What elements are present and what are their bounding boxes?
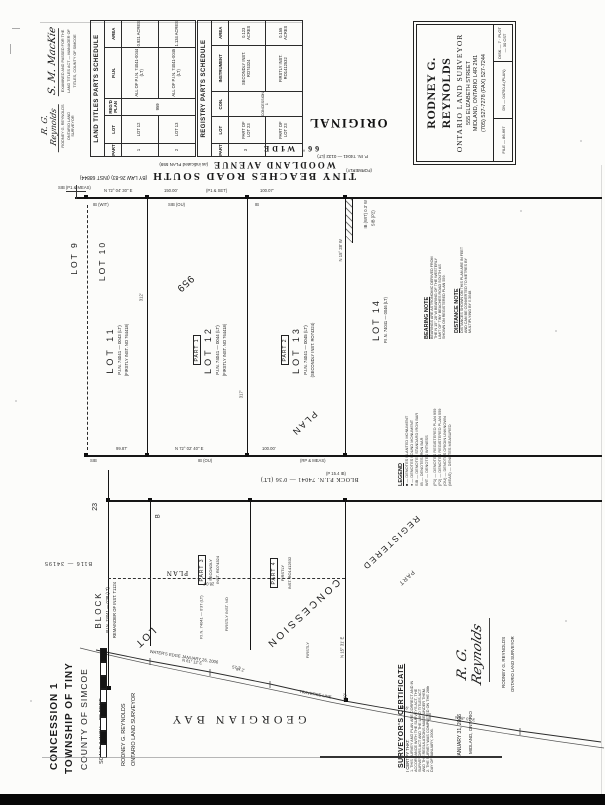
formerly-label: (FORMERLY) [338, 166, 380, 174]
tiny-beaches-road-text: TINY BEACHES ROAD SOUTH [151, 170, 356, 182]
parcel-lot13: PART 2 LOT 13 P.I.N. 74041 — 0045 (LT) (… [276, 288, 320, 412]
survey-annotation: IB (WIT) 0.3' W [364, 200, 369, 228]
firm-title: ONTARIO LAND SURVEYOR [455, 34, 464, 153]
col-header-area: AREA [105, 21, 121, 48]
cell-con-merged: CONCESSION 1 [228, 92, 302, 117]
survey-monument [84, 453, 88, 457]
block-south-limit-line [107, 500, 602, 502]
block-band-text: BLOCK P.I.N. 74041 — 0'36 (LT) [260, 476, 358, 483]
georgian-bay-label: GEORGIAN BAY [175, 706, 300, 732]
certificate-sig-title-text: ONTARIO LAND SURVEYOR [510, 636, 515, 692]
woodland-avenue-note: (as indicated PLAN 559) [159, 162, 208, 167]
table-row: 1 LOT 12 959 ALL OF P.I.N. 74041-0044 (L… [121, 21, 158, 157]
part4-inst2: INST. RO1412532 [287, 557, 292, 589]
lot10-text: LOT 10 [97, 241, 107, 281]
lower-firstly: FIRSTLY [306, 642, 310, 658]
parcel-lot11: LOT 11 P.I.N. 74041 — 0043 (LT) (FIRSTLY… [100, 290, 134, 410]
lot9-text: LOT 9 [69, 241, 79, 274]
scale-bar [100, 648, 107, 758]
cell-area: 1.134 ACRES [158, 21, 195, 48]
registry-schedule: REGISTRY PARTS SCHEDULE PART LOT CON. IN… [197, 20, 303, 157]
signature-rule [489, 618, 490, 682]
col-header-part: PART [212, 144, 228, 157]
surveyor-caption: RODNEY G. REYNOLDS [61, 104, 65, 147]
plan-dashed-label: PLAN [160, 567, 194, 577]
lot14-pin: P.I.N. 74041 — 0046 (LT) [383, 297, 388, 343]
examiner-signature: S. M. MacKie [47, 26, 59, 96]
cell-part: 1 [121, 144, 158, 157]
survey-annotation: 100.00' [262, 447, 276, 452]
plan-word-diagonal: PLAN [282, 408, 326, 438]
block-note: REMAINDER OF INST. T1124 [112, 582, 117, 638]
georgian-bay-text: GEORGIAN BAY [169, 712, 307, 725]
lot10-label: LOT 10 [92, 226, 104, 296]
certificate-sig-title: ONTARIO LAND SURVEYOR [501, 618, 509, 692]
plan-word-text: PLAN [289, 409, 319, 438]
firm-plot-info: DISK — 7 · PLOT — 30 CST [494, 25, 512, 61]
certificate-title-text: SURVEYOR'S CERTIFICATE [398, 664, 405, 768]
concession-diagonal: CONCESSION [258, 586, 348, 640]
certificate-line: DAY OF JANUARY, 2006. [430, 612, 434, 772]
title-concession: CONCESSION 1 [44, 638, 59, 770]
survey-annotation: SIB (P2) [372, 210, 377, 226]
survey-annotation: (RP & MEAS) [300, 459, 326, 464]
lot12-inst: (FIRSTLY INST. NO 764418) [222, 324, 227, 376]
bottom-rule-faint [42, 757, 322, 758]
survey-monument [245, 453, 249, 457]
lot12-pin: P.I.N. 74041 — 0044 (LT) [215, 325, 220, 374]
lot11-inst: (FIRSTLY INST. NO 764418) [124, 324, 129, 376]
part3-inst1: SECONDLY [208, 559, 213, 581]
tiny-beaches-road-label: TINY BEACHES ROAD SOUTH (BY LAW 26-83) (… [92, 169, 344, 183]
survey-annotation: (P 15.4 IB) [326, 472, 346, 477]
lot12-name: LOT 12 [203, 326, 213, 374]
part4-box: PART 4 [270, 558, 278, 589]
cell-pin: ALL OF P.I.N. 74041-0044 (LT) [121, 47, 158, 98]
col-header-instrument: INSTRUMENT [212, 45, 228, 91]
certificate-sig-name: RODNEY G. REYNOLDS [492, 618, 501, 688]
firm-drawing-number: DN — 04750-A (PLAN) [494, 61, 512, 118]
plan-limit-dashed-line [108, 578, 345, 579]
lot13-pin: P.I.N. 74041 — 0045 (LT) [303, 325, 308, 374]
lower-lot-line [250, 500, 251, 650]
survey-monument [107, 686, 111, 690]
certificate-place-text: MIDLAND, ONTARIO [468, 711, 473, 754]
lower-pin1: P.I.N. 74041 — 0'37 (LT) [200, 595, 204, 639]
surveyor-caption: ONTARIO LAND SURVEYOR [67, 102, 75, 150]
examiner-caption: TITLES, COUNTY OF SIMCOE [73, 34, 77, 87]
woodland-avenue-text: WOODLAND AVENUE [212, 159, 336, 169]
titleblock-firm-title: ONTARIO LAND SURVEYOR [122, 644, 131, 766]
cell-plan-merged: 959 [121, 98, 195, 115]
surveyor-approval-block: R. G. Reynolds RODNEY G. REYNOLDS ONTARI… [32, 102, 82, 150]
legend-block: LEGEND ■ — DENOTES PLANTED MONUMENT ● — … [398, 366, 476, 486]
table-row: 4 PART OF LOT 23 FIRSTLY INST. RO1412532… [265, 21, 302, 157]
certificate-title: SURVEYOR'S CERTIFICATE [390, 616, 403, 768]
survey-annotation: IB [255, 203, 259, 208]
surveyor-firm-box: RODNEY G. REYNOLDS ONTARIO LAND SURVEYOR… [416, 24, 513, 162]
certificate-date: JANUARY 31, 2006 [448, 688, 457, 758]
col-header-part: PART [105, 144, 121, 157]
survey-annotation: N 15° 28' W [339, 239, 344, 261]
title-county-text: COUNTY OF SIMCOE [79, 668, 89, 770]
cell-lot: PART OF LOT 23 [228, 117, 265, 144]
table-row: 2 LOT 13 ALL OF P.I.N. 74041-0045 (LT) 1… [158, 21, 195, 157]
survey-annotation: 99.87' [116, 447, 127, 452]
survey-monument [343, 453, 347, 457]
block-name: BLOCK [94, 591, 103, 628]
formerly-text: (FORMERLY) [346, 168, 372, 173]
scanned-survey-plan: S. M. MacKie EXAMINED AND PASSED FOR THE… [0, 0, 605, 805]
distance-note: DISTANCE NOTE DISTANCES SHOWN ON THIS PL… [454, 233, 476, 333]
part-stamp-text: PART [397, 568, 416, 586]
survey-annotation: 28.04' [203, 581, 214, 586]
col-header-plan: REG'D PLAN [105, 98, 121, 115]
road-widening-hatch [345, 199, 352, 243]
bearing-note: BEARING NOTE BEARINGS ARE ASTRONOMIC DER… [424, 233, 450, 339]
township-lot-line-dashed [87, 205, 88, 450]
survey-annotation: N 72° 04' 30" E [104, 189, 132, 194]
firm-address: 555 ELIZABETH STREET [466, 61, 472, 125]
bearing-note-line: SHOWN ON REGISTERED PLAN 559. [442, 233, 446, 339]
concession-text: CONCESSION [264, 576, 343, 650]
lot9-label: LOT 9 [64, 226, 76, 290]
survey-annotation: N 72° 02' 40" E [175, 447, 203, 452]
cell-area: 0.123 ACRES [228, 21, 265, 46]
titleblock-firm-name: RODNEY G. REYNOLDS [112, 644, 121, 766]
part3-inst2: INST. RO74324 [215, 556, 220, 584]
legend-line: (MEAS) — DENOTES MEASURED [447, 366, 452, 486]
land-titles-title: LAND TITLES PARTS SCHEDULE [91, 21, 105, 157]
firm-file-number: FILE — 86-667 [494, 118, 512, 161]
certificate-body: I CERTIFY THAT: 1. THIS SURVEY AND PLAN … [405, 612, 441, 772]
parcel-lot14: LOT 14 P.I.N. 74041 — 0046 (LT) [366, 282, 392, 358]
block-letter-b: B [156, 514, 163, 518]
col-header-area: AREA [212, 21, 228, 46]
survey-annotation: (P1 & SET) [206, 189, 227, 194]
lower-pin2: FIRSTLY INST. NO [225, 597, 229, 631]
block-pin: P.I.N. 74041 — 0'38 (LT) [105, 587, 110, 633]
examiner-approval-block: S. M. MacKie EXAMINED AND PASSED FOR THE… [34, 26, 90, 96]
titleblock-firm-title-text: ONTARIO LAND SURVEYOR [131, 693, 137, 766]
firm-phone: (705) 527-7278 (FAX) 527-7244 [481, 54, 487, 132]
land-titles-schedule: LAND TITLES PARTS SCHEDULE PART LOT REG'… [90, 20, 196, 157]
part2-box: PART 2 [281, 335, 289, 366]
survey-annotation: SIB [90, 459, 97, 464]
title-county: COUNTY OF SIMCOE [74, 638, 87, 770]
survey-annotation: 317' [240, 390, 245, 398]
lot-line [147, 199, 148, 455]
certificate-signature: R. G. Reynolds [452, 616, 488, 682]
cell-part: 2 [158, 144, 195, 157]
certificate-place: MIDLAND, ONTARIO [459, 690, 467, 754]
road-widening-line [352, 199, 353, 243]
cell-lot: PART OF LOT 23 [265, 117, 302, 144]
bottom-rule [320, 756, 502, 758]
survey-monument [145, 453, 149, 457]
col-header-lot: LOT [212, 117, 228, 144]
lot-line [247, 199, 248, 457]
cell-area: 0.921 ACRES [121, 21, 158, 48]
survey-annotation: IB (WIT) [93, 203, 109, 208]
examiner-caption: EXAMINED AND PASSED FOR THE [61, 30, 65, 93]
part4-inst1: FIRSTLY [280, 565, 285, 581]
plan-959-diagonal: 959 [165, 268, 205, 298]
cell-instrument: FIRSTLY INST. RO1412532 [265, 45, 302, 91]
firm-name: RODNEY G. REYNOLDS [424, 25, 454, 161]
firm-city: MIDLAND, ONTARIO L4R 2M1 [473, 55, 479, 131]
cell-lot: LOT 12 [121, 115, 158, 143]
surveyor-signature: R. G. Reynolds [40, 100, 59, 153]
original-stamp: ORIGINAL [318, 112, 378, 134]
col-header-con: CON. [212, 92, 228, 117]
lot14-name: LOT 14 [371, 299, 381, 341]
plan-959-text: 959 [174, 272, 196, 293]
examiner-caption: LAND TITLES ACT — MANAGER OF [67, 29, 71, 93]
lot13-inst: (SECONDLY INST. RO74324) [310, 323, 315, 378]
plan-dashed-text: PLAN [166, 568, 188, 576]
col-header-pin: P.I.N. [105, 47, 121, 98]
survey-annotation: 150.00' [164, 189, 178, 194]
survey-annotation: SIB (OU) [168, 203, 185, 208]
parcel-lot12: PART 1 LOT 12 P.I.N. 74041 — 0044 (LT) (… [188, 288, 232, 412]
block-number: 23 [92, 503, 100, 511]
part1-box: PART 1 [193, 335, 201, 366]
survey-monument [84, 195, 88, 199]
lot13-name: LOT 13 [291, 326, 301, 374]
lot11-name: LOT 11 [105, 326, 115, 373]
cell-area: 0.155 ACRES [265, 21, 302, 46]
title-township: TOWNSHIP OF TINY [59, 634, 74, 774]
col-header-lot: LOT [105, 115, 121, 143]
survey-annotation: IB (OU) [198, 459, 212, 464]
table-row: 3 PART OF LOT 23 CONCESSION 1 SECONDLY I… [228, 21, 265, 157]
certificate-signature-text: R. G. Reynolds [455, 611, 485, 687]
cell-lot: LOT 13 [158, 115, 195, 143]
survey-annotation: SIB (P1 & MEAS) [58, 186, 91, 191]
part-stamp-diagonal: PART [390, 564, 422, 590]
cell-instrument: SECONDLY INST. RO74324 [228, 45, 265, 91]
survey-annotation: 100.07' [260, 189, 274, 194]
survey-annotation: 312' [140, 293, 145, 301]
registry-title: REGISTRY PARTS SCHEDULE [198, 21, 212, 157]
cell-pin: ALL OF P.I.N. 74041-0045 (LT) [158, 47, 195, 98]
block-band-label: BLOCK P.I.N. 74041 — 0'36 (LT) [252, 473, 367, 485]
distance-note-line: MULTIPLYING BY 0.3048. [468, 233, 472, 333]
original-stamp-text: ORIGINAL [308, 116, 387, 130]
road-south-limit-line [75, 197, 602, 199]
tiny-beaches-road-note: (BY LAW 26-83) (INST 68844) [80, 173, 147, 179]
legend-line: WIT — DENOTES WITNESS [424, 366, 429, 486]
scale-label: SCALE 1 INCH = 30 FEET [90, 646, 100, 764]
lot11-pin: P.I.N. 74041 — 0043 (LT) [117, 325, 122, 374]
